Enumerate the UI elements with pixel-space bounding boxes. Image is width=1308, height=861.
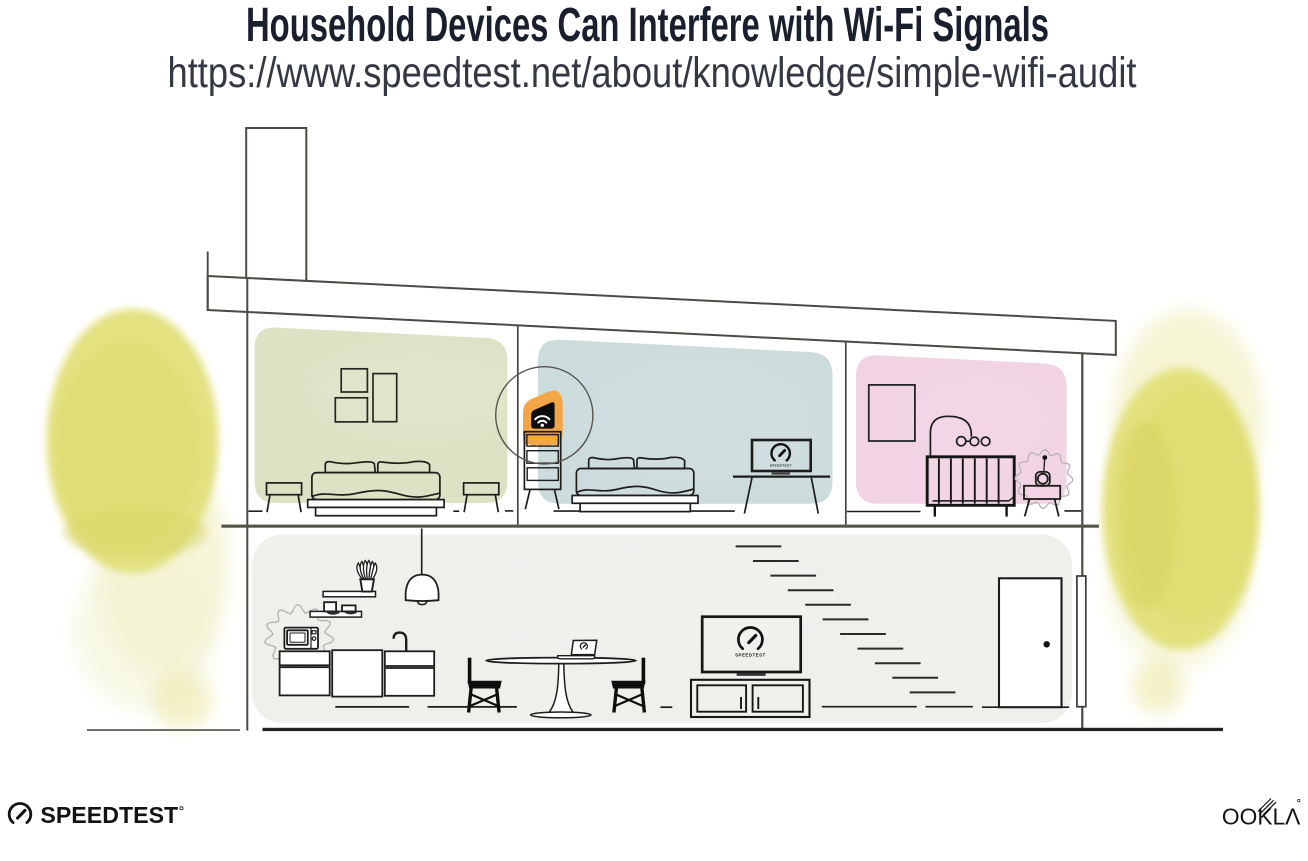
svg-text:https://www.speedtest.net/abou: https://www.speedtest.net/about/knowledg… — [168, 49, 1137, 97]
svg-text:SPEEDTEST: SPEEDTEST — [770, 463, 792, 467]
svg-text:SPEEDTEST: SPEEDTEST — [40, 802, 178, 828]
svg-text:Household Devices Can Interfer: Household Devices Can Interfere with Wi-… — [246, 0, 1049, 52]
svg-text:SPEEDTEST: SPEEDTEST — [735, 653, 766, 658]
